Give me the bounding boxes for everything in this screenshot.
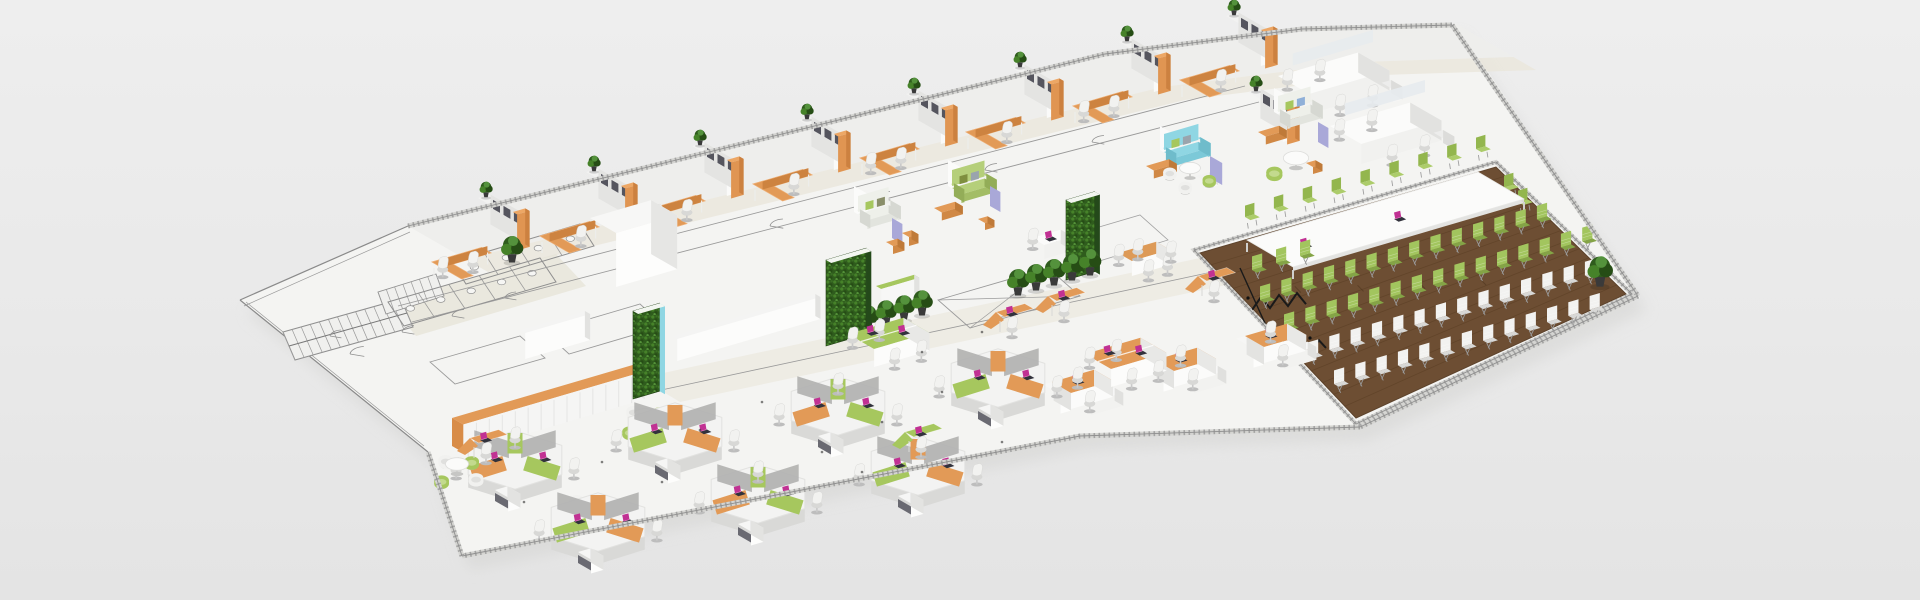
office-floorplan-render (0, 0, 1920, 600)
isometric-scene (0, 0, 1920, 600)
page: { "meta":{"title":"Isometric 3D office f… (0, 0, 1920, 600)
green-wall-column (633, 303, 665, 399)
floorplan-svg (0, 0, 1920, 600)
